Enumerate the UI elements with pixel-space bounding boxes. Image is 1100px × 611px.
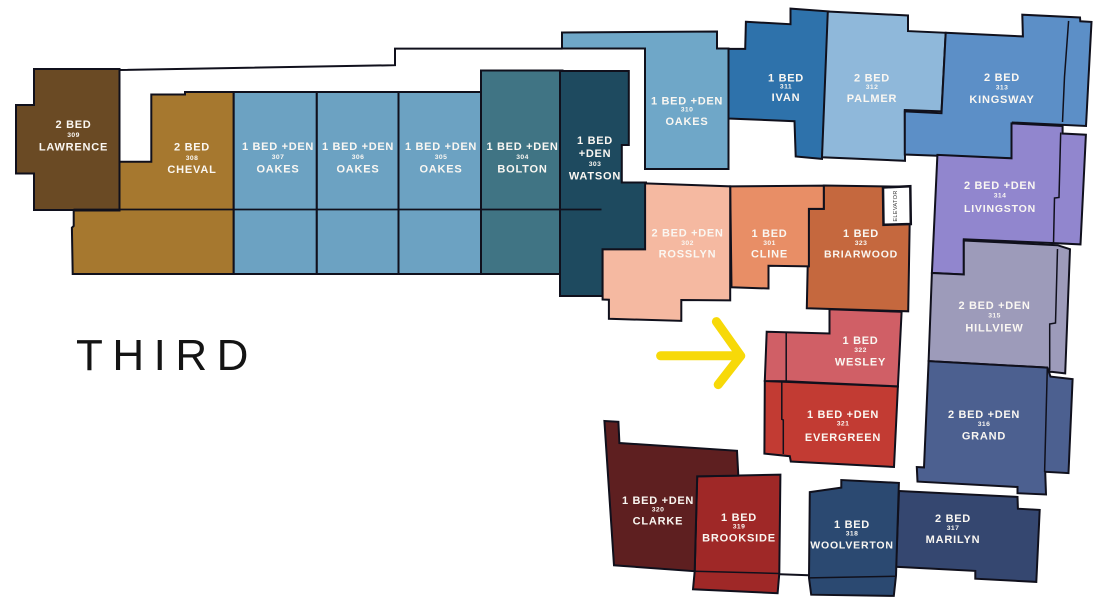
svg-text:322: 322 bbox=[854, 347, 867, 354]
svg-text:302: 302 bbox=[681, 240, 694, 247]
svg-text:320: 320 bbox=[652, 507, 665, 514]
svg-text:319: 319 bbox=[733, 524, 746, 531]
svg-text:2 BED: 2 BED bbox=[984, 72, 1020, 84]
svg-text:BOLTON: BOLTON bbox=[497, 164, 547, 176]
svg-text:1 BED: 1 BED bbox=[721, 512, 757, 524]
svg-text:1 BED: 1 BED bbox=[843, 335, 879, 347]
svg-text:WESLEY: WESLEY bbox=[835, 357, 886, 369]
svg-text:2 BED +DEN: 2 BED +DEN bbox=[958, 300, 1030, 312]
svg-text:BRIARWOOD: BRIARWOOD bbox=[824, 249, 898, 261]
svg-text:1 BED: 1 BED bbox=[834, 519, 870, 531]
svg-text:312: 312 bbox=[866, 84, 879, 91]
svg-text:CHEVAL: CHEVAL bbox=[167, 164, 216, 176]
svg-text:1 BED +DEN: 1 BED +DEN bbox=[242, 141, 314, 153]
svg-text:1 BED: 1 BED bbox=[843, 228, 879, 240]
svg-text:310: 310 bbox=[681, 107, 694, 114]
svg-text:301: 301 bbox=[763, 240, 776, 247]
svg-text:+DEN: +DEN bbox=[579, 148, 611, 160]
svg-text:OAKES: OAKES bbox=[256, 164, 299, 176]
svg-text:MARILYN: MARILYN bbox=[926, 534, 981, 546]
svg-text:313: 313 bbox=[996, 85, 1009, 92]
svg-text:2 BED +DEN: 2 BED +DEN bbox=[651, 228, 723, 240]
svg-text:CLINE: CLINE bbox=[751, 249, 788, 261]
svg-text:1 BED: 1 BED bbox=[577, 135, 613, 147]
svg-text:315: 315 bbox=[988, 313, 1001, 320]
svg-text:EVERGREEN: EVERGREEN bbox=[805, 432, 881, 444]
svg-text:306: 306 bbox=[352, 154, 365, 161]
svg-text:CLARKE: CLARKE bbox=[633, 516, 684, 528]
svg-text:2 BED +DEN: 2 BED +DEN bbox=[948, 409, 1020, 421]
svg-text:2 BED: 2 BED bbox=[935, 513, 971, 525]
svg-text:PALMER: PALMER bbox=[847, 93, 897, 105]
svg-text:2 BED: 2 BED bbox=[56, 119, 92, 131]
svg-text:321: 321 bbox=[837, 421, 850, 428]
svg-text:1 BED +DEN: 1 BED +DEN bbox=[807, 409, 879, 421]
svg-text:WOOLVERTON: WOOLVERTON bbox=[810, 540, 893, 552]
svg-text:304: 304 bbox=[516, 154, 529, 161]
svg-text:323: 323 bbox=[855, 240, 868, 247]
svg-text:BROOKSIDE: BROOKSIDE bbox=[702, 533, 776, 545]
svg-text:305: 305 bbox=[435, 154, 448, 161]
svg-text:1 BED +DEN: 1 BED +DEN bbox=[486, 141, 558, 153]
svg-text:WATSON: WATSON bbox=[569, 171, 621, 183]
svg-text:2 BED +DEN: 2 BED +DEN bbox=[964, 180, 1036, 192]
svg-text:THIRD: THIRD bbox=[76, 331, 258, 380]
svg-text:LAWRENCE: LAWRENCE bbox=[39, 142, 108, 154]
svg-text:316: 316 bbox=[978, 421, 991, 428]
svg-text:HILLVIEW: HILLVIEW bbox=[965, 323, 1023, 335]
svg-text:317: 317 bbox=[947, 525, 960, 532]
svg-text:308: 308 bbox=[186, 155, 199, 162]
svg-text:314: 314 bbox=[994, 193, 1007, 200]
svg-text:1 BED +DEN: 1 BED +DEN bbox=[622, 495, 694, 507]
svg-text:OAKES: OAKES bbox=[336, 164, 379, 176]
svg-text:IVAN: IVAN bbox=[772, 92, 801, 104]
svg-text:307: 307 bbox=[272, 154, 285, 161]
svg-text:1 BED +DEN: 1 BED +DEN bbox=[405, 141, 477, 153]
svg-text:311: 311 bbox=[780, 84, 792, 91]
svg-text:1 BED: 1 BED bbox=[752, 228, 788, 240]
svg-text:2 BED: 2 BED bbox=[854, 73, 890, 85]
svg-text:ELEVATOR: ELEVATOR bbox=[893, 190, 899, 221]
svg-text:LIVINGSTON: LIVINGSTON bbox=[964, 203, 1036, 215]
svg-text:1 BED +DEN: 1 BED +DEN bbox=[322, 141, 394, 153]
svg-text:KINGSWAY: KINGSWAY bbox=[969, 94, 1034, 106]
svg-text:309: 309 bbox=[67, 132, 80, 139]
svg-text:OAKES: OAKES bbox=[419, 164, 462, 176]
svg-text:318: 318 bbox=[846, 531, 859, 538]
svg-text:OAKES: OAKES bbox=[665, 116, 708, 128]
svg-text:303: 303 bbox=[589, 161, 602, 168]
svg-text:GRAND: GRAND bbox=[962, 431, 1006, 443]
svg-text:ROSSLYN: ROSSLYN bbox=[659, 249, 717, 261]
svg-text:2 BED: 2 BED bbox=[174, 142, 210, 154]
